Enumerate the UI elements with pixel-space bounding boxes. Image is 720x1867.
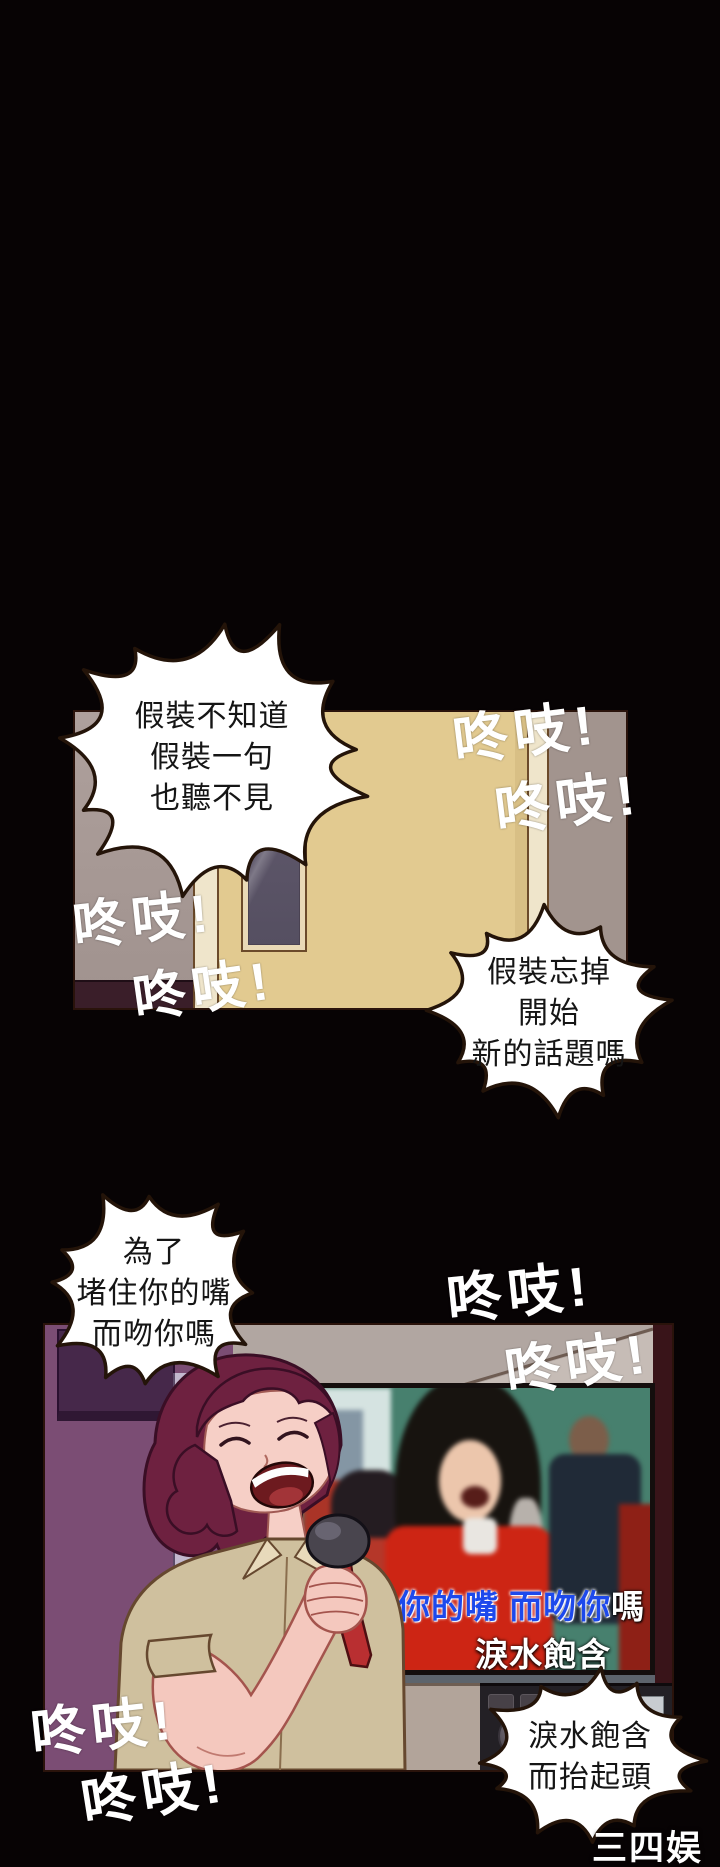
earring	[212, 1490, 218, 1496]
wall-frame-strip	[173, 1373, 209, 1770]
speech-bubble-pretend-forget-text: 假裝忘掉 開始 新的話題嗎	[439, 955, 659, 1071]
tv-screen: 住你的嘴 而吻你嗎 淚水飽含	[298, 1383, 655, 1675]
collar-left	[243, 1539, 281, 1579]
speech-bubble-shut-mouth-text: 為了 堵住你的嘴 而吻你嗎	[54, 1235, 254, 1351]
speech-bubble-pretend-not-know-text: 假裝不知道 假裝一句 也聽不見	[82, 692, 342, 822]
comic-page: 住你的嘴 而吻你嗎 淚水飽含	[0, 0, 720, 1867]
closed-eye-left	[221, 1438, 249, 1445]
brow-left	[219, 1423, 250, 1427]
shelf-seam	[395, 1686, 397, 1770]
nose	[264, 1455, 267, 1467]
speech-bubble-tears-rise-text: 淚水飽含 而抬起頭	[490, 1714, 690, 1800]
tv-stand-gap	[280, 1683, 310, 1770]
tv-subtitle-line1: 住你的嘴 而吻你嗎	[363, 1580, 645, 1628]
watermark: 三四娱乐	[592, 1820, 720, 1867]
tv-subtitle-unsung: 嗎	[611, 1588, 645, 1625]
tv-subtitle-sung: 住你的嘴 而吻你	[363, 1588, 611, 1625]
shelf-front	[310, 1683, 480, 1770]
